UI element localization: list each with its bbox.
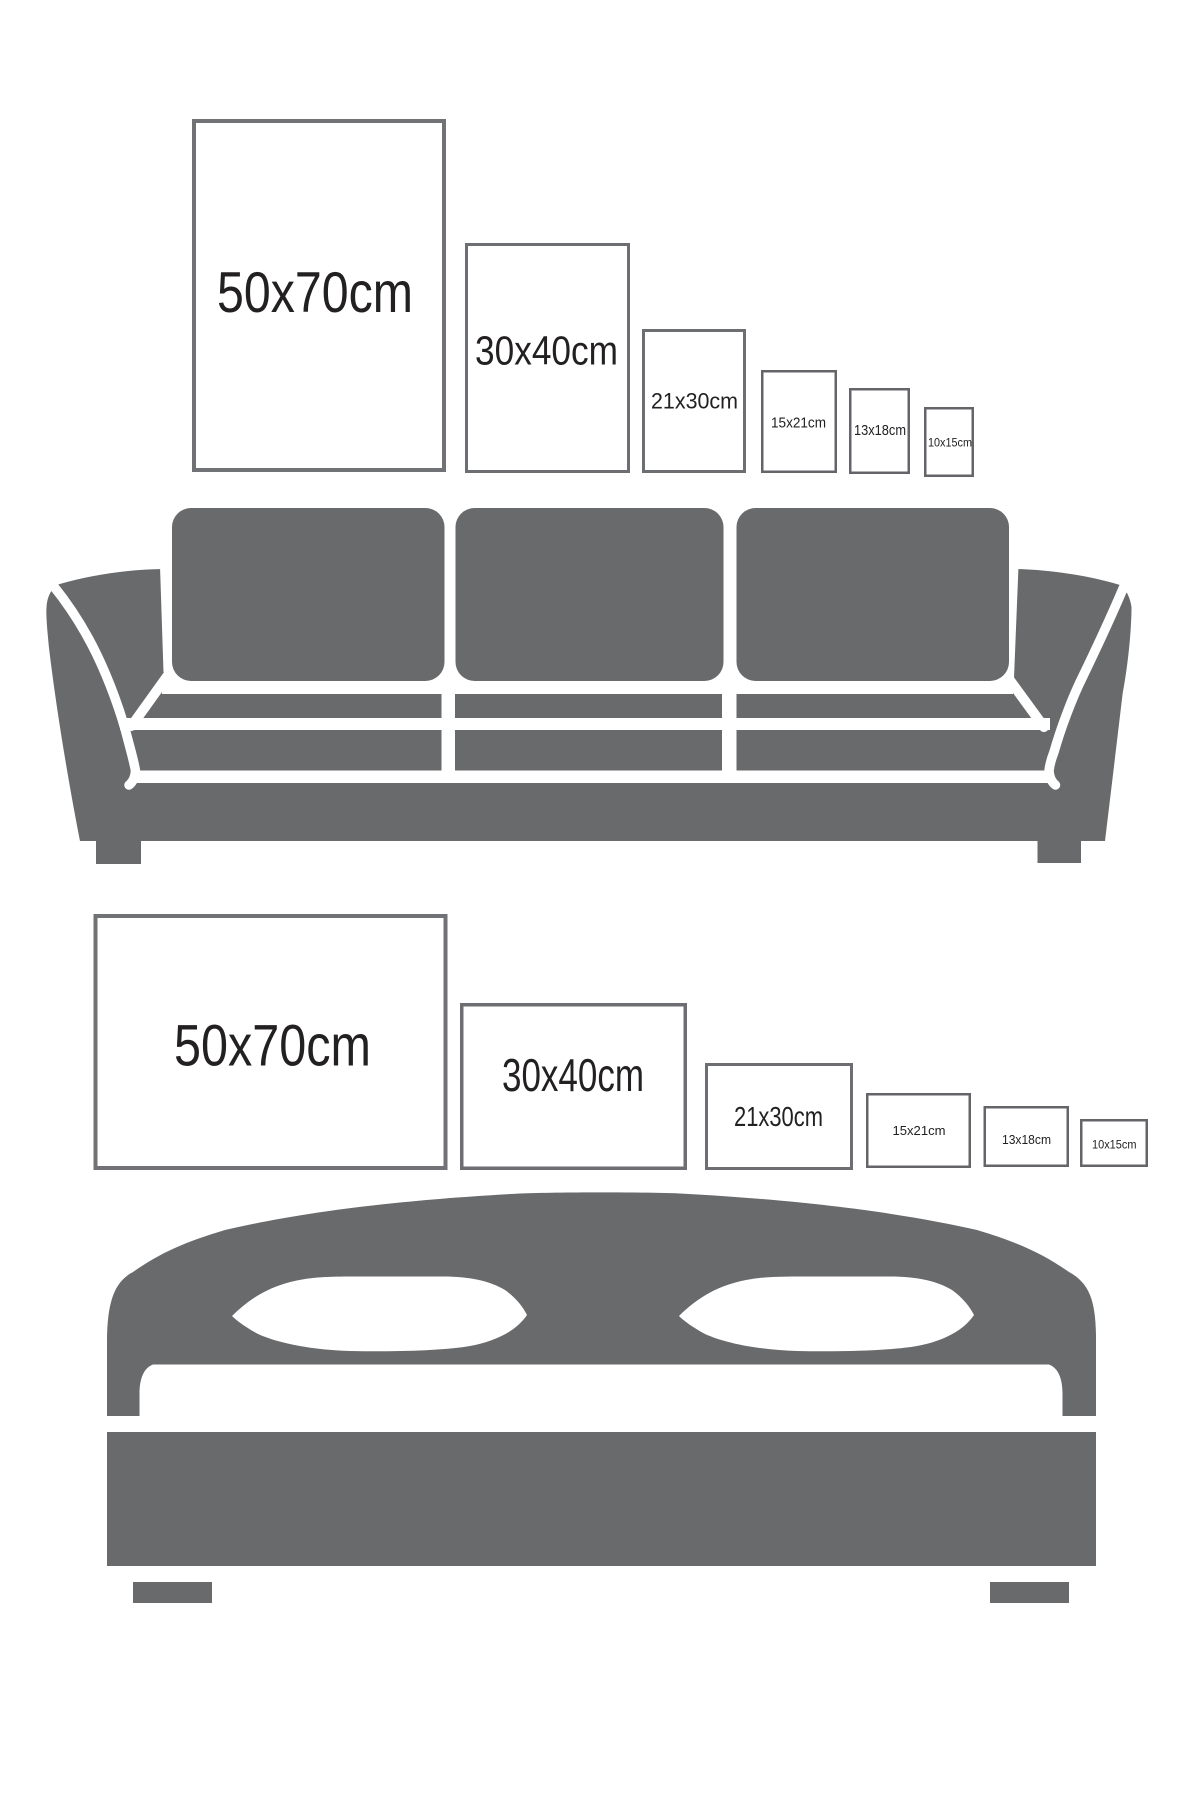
svg-text:50x70cm: 50x70cm [217,261,413,325]
svg-text:13x18cm: 13x18cm [854,422,906,439]
svg-text:21x30cm: 21x30cm [651,389,738,414]
svg-text:15x21cm: 15x21cm [893,1123,946,1138]
svg-text:13x18cm: 13x18cm [1002,1132,1051,1147]
svg-text:15x21cm: 15x21cm [771,415,826,432]
svg-text:30x40cm: 30x40cm [502,1049,644,1101]
svg-text:10x15cm: 10x15cm [1092,1138,1137,1152]
svg-text:21x30cm: 21x30cm [734,1101,823,1132]
svg-text:30x40cm: 30x40cm [475,328,618,374]
svg-text:50x70cm: 50x70cm [174,1014,371,1079]
svg-text:10x15cm: 10x15cm [928,436,972,450]
